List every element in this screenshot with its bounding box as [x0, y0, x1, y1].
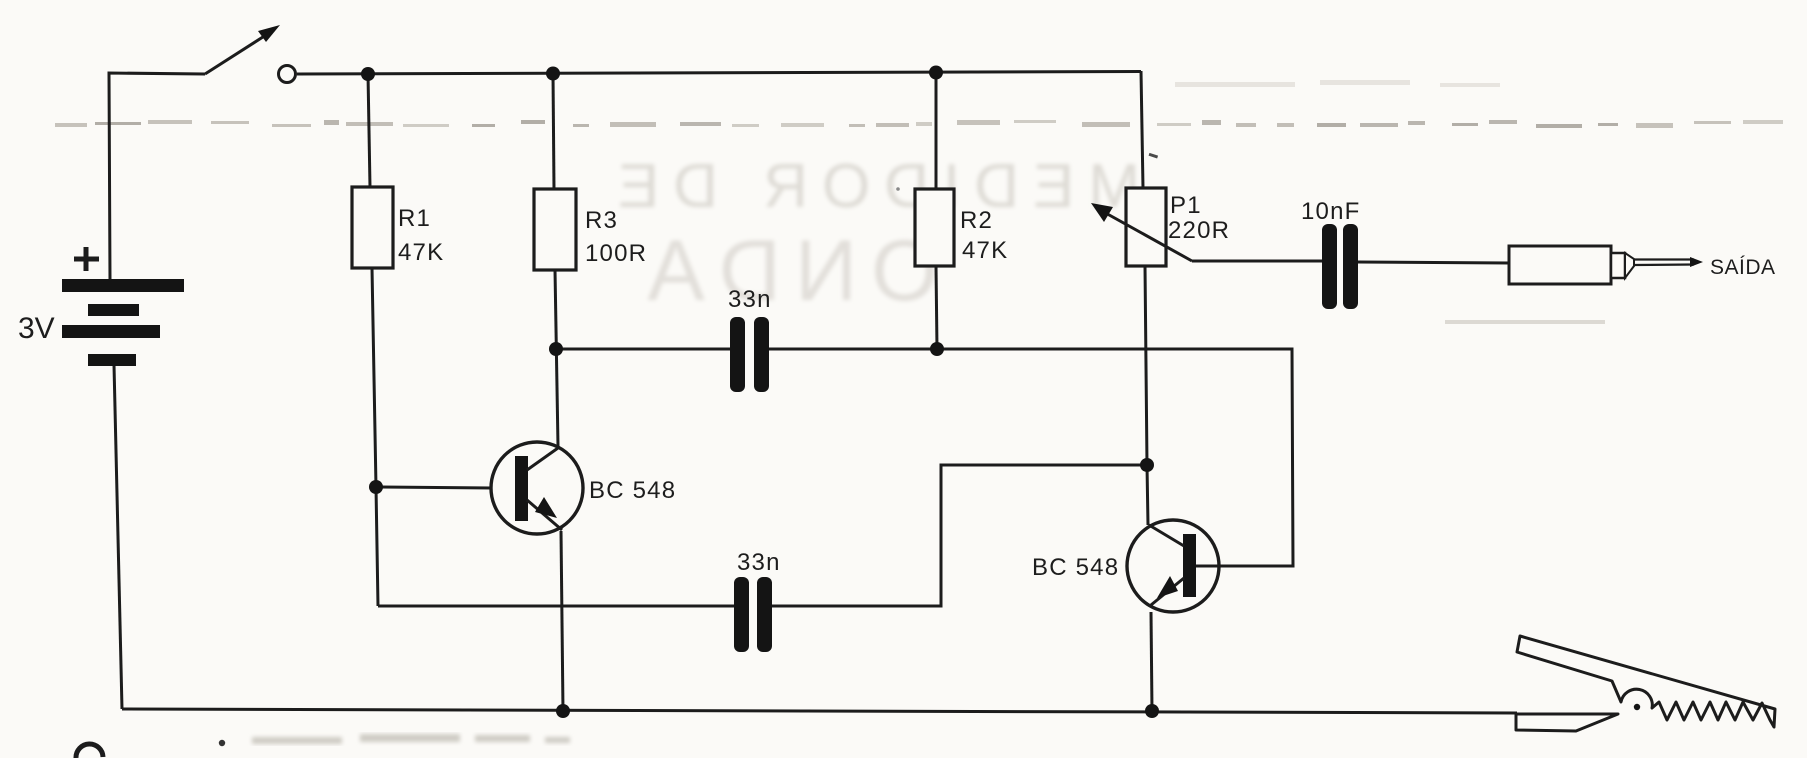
svg-text:47K: 47K: [962, 237, 1008, 264]
svg-text:BC 548: BC 548: [1032, 554, 1119, 581]
svg-text:10nF: 10nF: [1301, 198, 1361, 225]
svg-text:R2: R2: [960, 207, 993, 234]
svg-text:220R: 220R: [1168, 217, 1230, 244]
svg-text:33n: 33n: [737, 549, 781, 576]
svg-text:3V: 3V: [18, 312, 55, 345]
svg-text:47K: 47K: [398, 239, 444, 266]
svg-text:R1: R1: [398, 205, 431, 232]
svg-text:SAÍDA: SAÍDA: [1710, 256, 1776, 279]
svg-text:BC 548: BC 548: [589, 477, 676, 504]
svg-text:MEDIDOR DE: MEDIDOR DE: [604, 152, 1140, 221]
svg-text:33n: 33n: [728, 286, 772, 313]
svg-text:P1: P1: [1170, 192, 1202, 219]
svg-text:100R: 100R: [585, 240, 647, 267]
svg-text:ONDA: ONDA: [634, 223, 938, 319]
svg-text:R3: R3: [585, 207, 618, 234]
